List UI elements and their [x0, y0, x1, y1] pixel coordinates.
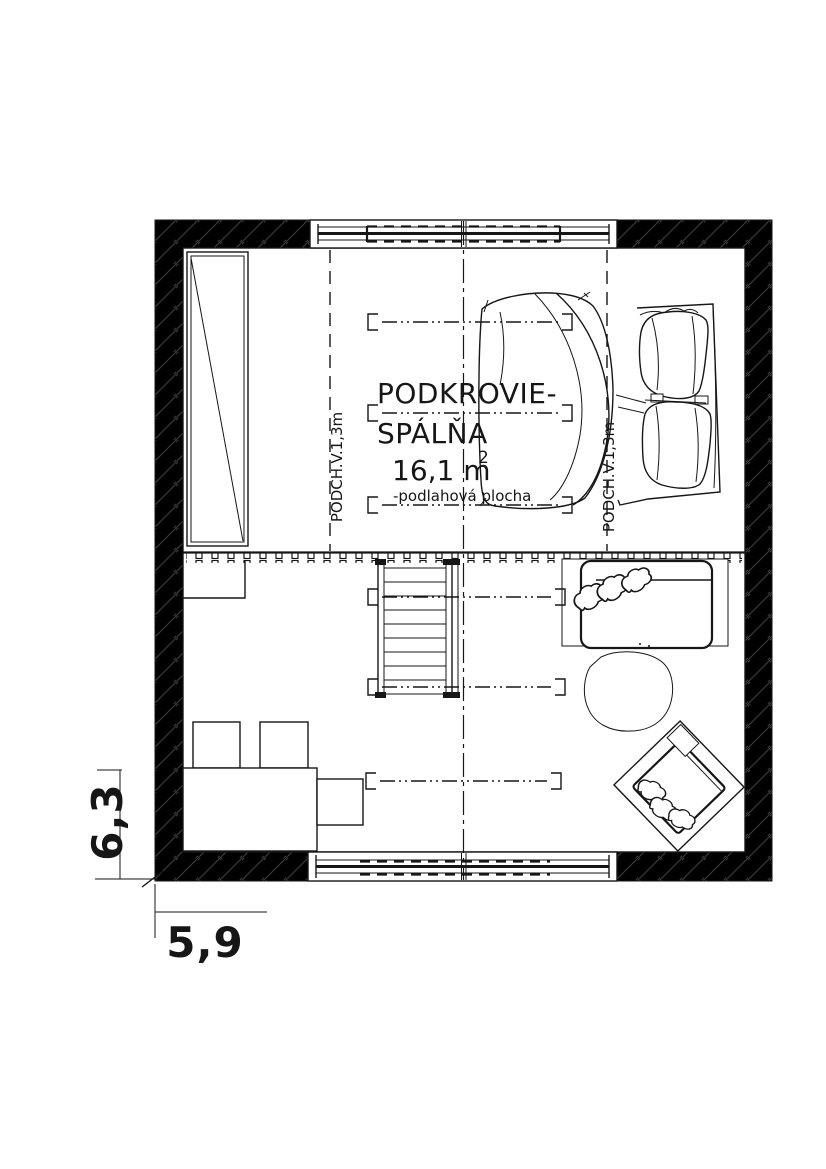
wall-right: [745, 220, 772, 881]
dimension-width-label: 5,9: [166, 918, 243, 967]
wardrobe: [187, 252, 248, 546]
rug: [584, 652, 672, 731]
wall-left: [155, 220, 183, 881]
floor-plan-drawing: PODKROVIE- SPÁLŇA 16,1 m 2 -podlahová pl…: [0, 0, 826, 1169]
dimension-height-label: 6,3: [83, 783, 132, 860]
desk-group: [183, 722, 363, 851]
stair-treads: [384, 568, 446, 694]
dimension-vertical: 6,3: [83, 770, 163, 887]
sofa: [562, 559, 728, 648]
armchair: [614, 721, 744, 851]
chair-side: [317, 779, 363, 825]
beam-line: [368, 679, 565, 695]
room-area-note: -podlahová plocha: [393, 487, 531, 505]
wall-top-left: [155, 220, 310, 248]
room-area-superscript: 2: [478, 448, 489, 468]
dimension-horizontal: 5,9: [155, 884, 267, 967]
chair: [260, 722, 308, 768]
stairs: [375, 559, 460, 698]
wall-top-right: [617, 220, 772, 248]
desk: [183, 768, 317, 851]
room-area: 16,1 m: [392, 454, 491, 487]
beam-line: [368, 589, 565, 605]
room-name-line1: PODKROVIE-: [377, 377, 557, 410]
chair: [193, 722, 240, 768]
headroom-label-right: PODCH.V.1,3m: [600, 422, 618, 532]
room-name-line2: SPÁLŇA: [377, 416, 488, 450]
wall-bottom-left: [155, 852, 308, 881]
wall-bottom-right: [617, 852, 772, 881]
window-bottom: [308, 852, 617, 881]
stair-opening-edge: [183, 560, 245, 598]
headroom-label-left: PODCH.V.1,3m: [328, 412, 346, 522]
floor-plan-sheet: PODKROVIE- SPÁLŇA 16,1 m 2 -podlahová pl…: [0, 0, 826, 1169]
